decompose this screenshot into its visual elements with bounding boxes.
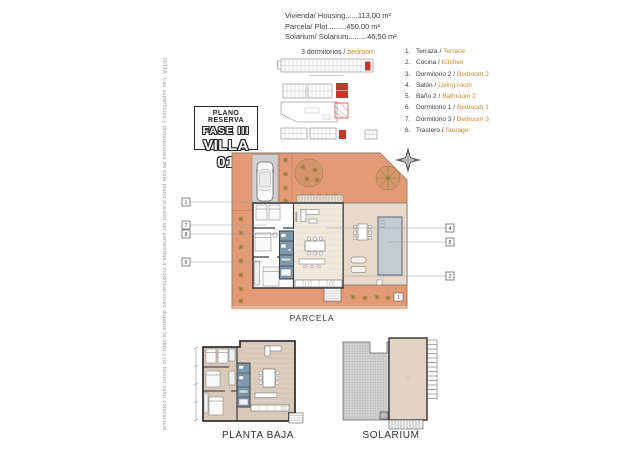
tree-cluster	[295, 159, 323, 187]
bedrooms-label-en: bedroom	[347, 49, 375, 56]
legend-item-bano2: 5.Baño 2 /Bathroom 2	[405, 93, 489, 104]
callout-4: 4	[449, 226, 452, 232]
house	[253, 203, 343, 288]
legend-item-dormitorio1: 6.Dormitorio 1 /Bedroom 1	[405, 104, 489, 115]
round-tree	[376, 166, 400, 190]
callout-2: 2	[449, 274, 452, 280]
badge-fase: FASE III	[195, 125, 257, 137]
bathrooms-strip	[280, 231, 294, 279]
title-block: Vivienda/ Housing......113,00 m² Parcela…	[285, 11, 397, 43]
bedrooms-label-es: 3 dormitorios /	[301, 49, 345, 56]
site-key-plans	[277, 56, 393, 142]
callout-6: 6	[185, 260, 188, 266]
reserva-badge: PLANO RESERVA FASE III VILLA 01	[194, 106, 258, 150]
solarium-deck	[389, 338, 427, 420]
legend-item-cocina: 2.Cocina /Kitchen	[405, 59, 489, 70]
inner-marker: 1	[394, 293, 403, 301]
callout-8: 8	[185, 232, 188, 238]
disclaimer-note: NOTA: Las superficies y dimensiones de e…	[161, 58, 167, 408]
pergola	[427, 340, 437, 400]
car-icon	[256, 162, 274, 201]
bathrooms-strip-pb	[237, 363, 250, 407]
callout-7: 7	[185, 223, 188, 229]
compass-icon	[395, 147, 421, 173]
room-legend: 1.Terraza /Terrace 2.Cocina /Kitchen 3.D…	[405, 48, 489, 138]
planta-baja-plan	[185, 333, 310, 431]
plot-area-line: Parcela/ Plot.........450,00 m²	[285, 22, 397, 33]
legend-item-dormitorio2: 3.Dormitorio 2 /Bedroom 2	[405, 71, 489, 82]
parcela-label: PARCELA	[267, 313, 357, 323]
planta-baja-label: PLANTA BAJA	[200, 430, 316, 441]
highlighted-unit-elevation	[339, 130, 346, 139]
highlighted-unit-strip	[365, 62, 371, 71]
steps-pb	[289, 413, 303, 423]
sidewalk-band	[232, 306, 407, 310]
legend-item-dormitorio3: 7.Dormitorio 3 /Bedroom 3	[405, 116, 489, 127]
outdoor-shower	[377, 280, 382, 285]
stairs-solarium	[389, 420, 423, 429]
solarium-area-line: Solarium/ Solarium.........46,50 m²	[285, 32, 397, 43]
legend-item-terraza: 1.Terraza /Terrace	[405, 48, 489, 59]
roof-access	[380, 412, 388, 419]
dimension-line	[194, 347, 198, 421]
badge-plano-reserva: PLANO RESERVA	[195, 110, 257, 124]
solarium-label: SOLARIUM	[343, 430, 439, 441]
outdoor-dining	[354, 224, 372, 240]
legend-item-salon: 4.Salón /Living room	[405, 82, 489, 93]
plan-sheet: Vivienda/ Housing......113,00 m² Parcela…	[0, 0, 630, 465]
solarium-plan	[333, 332, 448, 432]
svg-text:1: 1	[397, 295, 400, 301]
bedrooms-label: 3 dormitorios / bedroom	[301, 49, 375, 56]
pool	[378, 217, 402, 275]
callout-5: 5	[449, 240, 452, 246]
stairs	[324, 289, 341, 302]
legend-item-trastero: 8.Trastero /Storage	[405, 127, 489, 138]
callout-1: 1	[185, 200, 188, 206]
parcela-plan: 1 1 7 8 6 4	[175, 145, 470, 325]
housing-area-line: Vivienda/ Housing......113,00 m²	[285, 11, 397, 22]
